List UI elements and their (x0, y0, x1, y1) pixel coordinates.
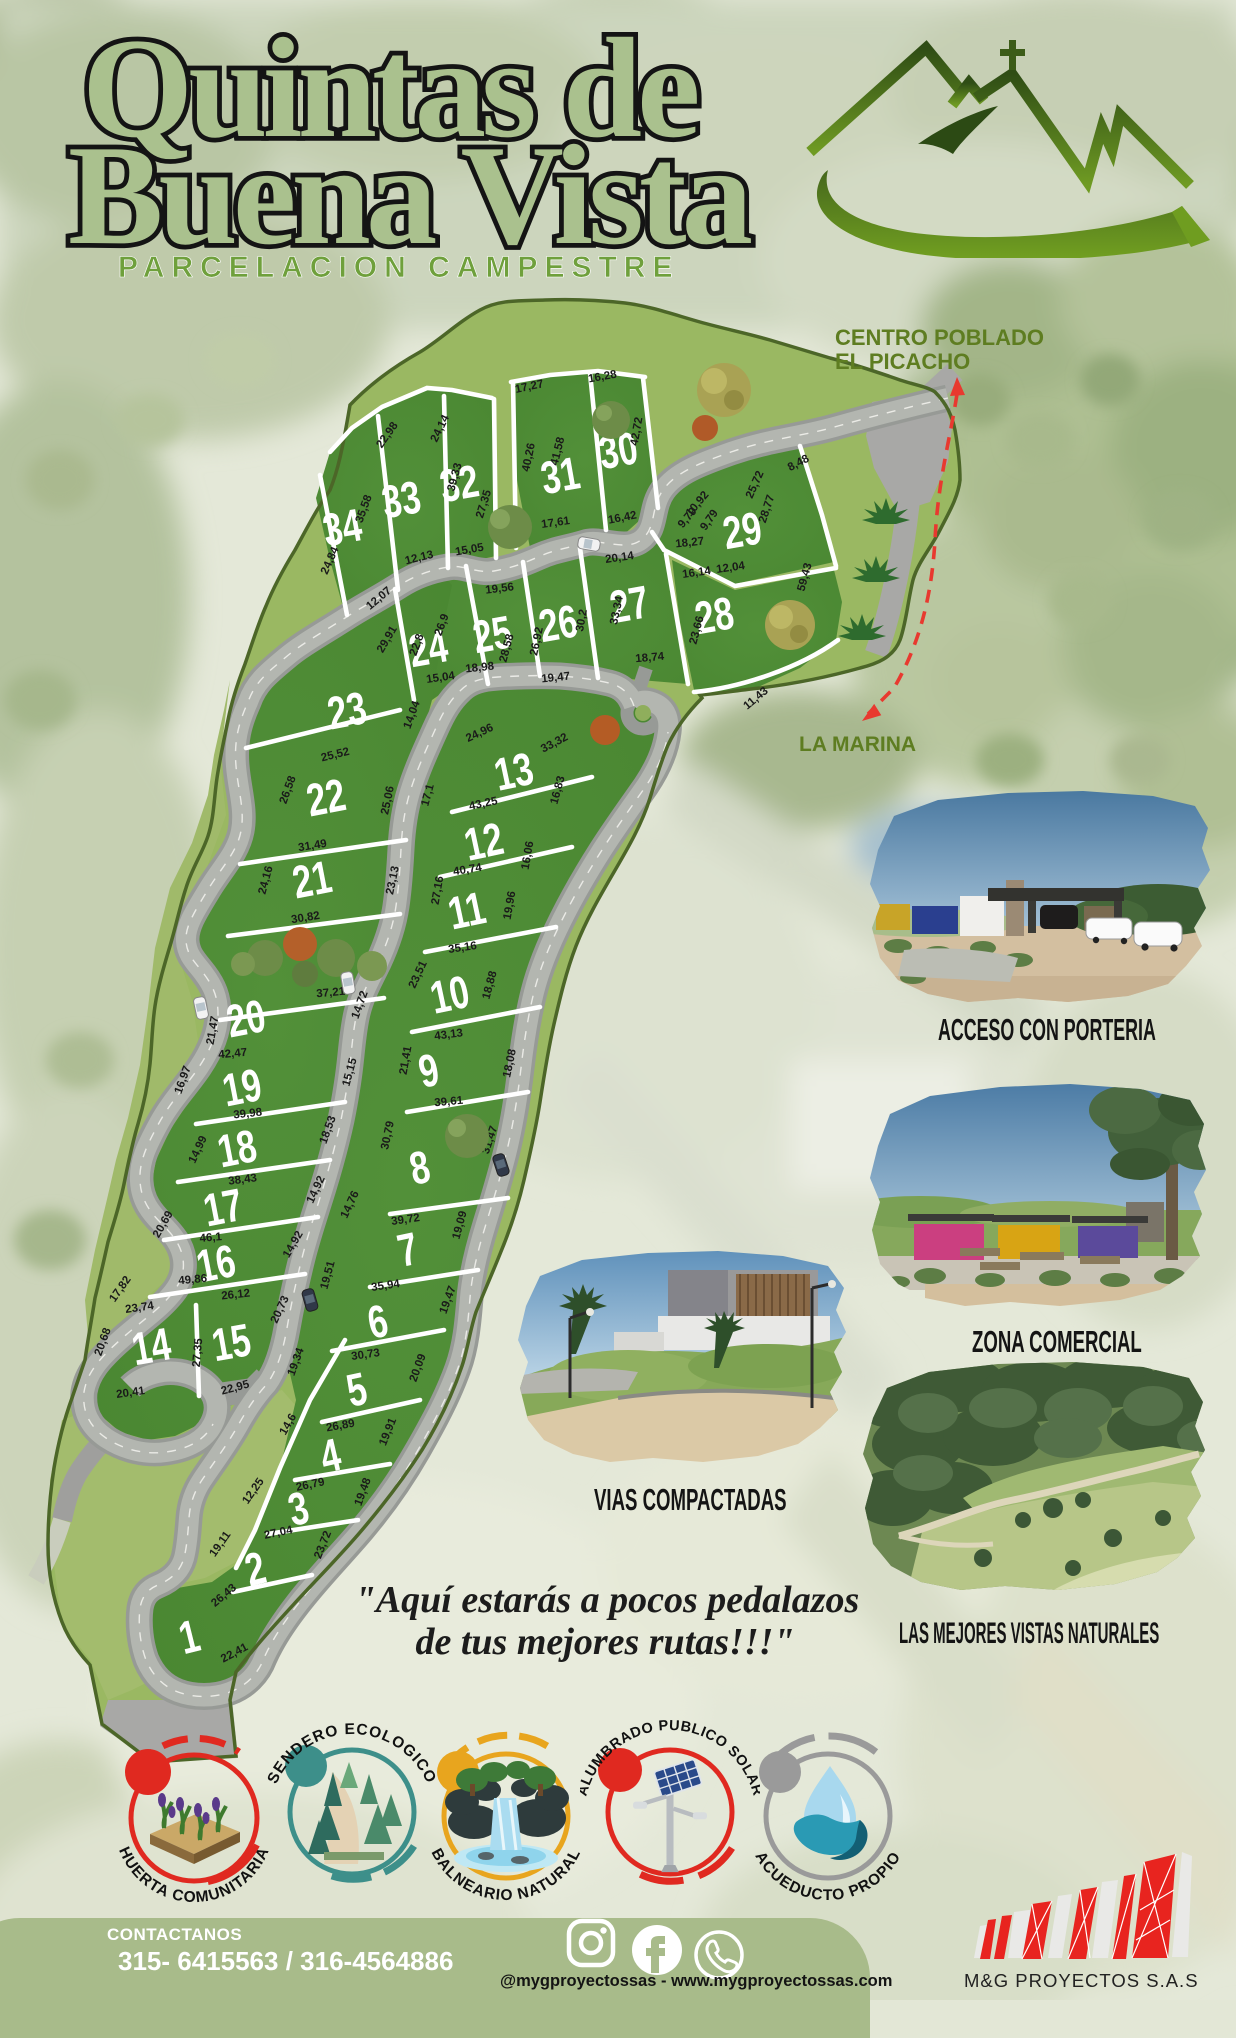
svg-text:"Aquí estarás a pocos pedalazo: "Aquí estarás a pocos pedalazos (355, 1579, 860, 1621)
svg-text:M&G PROYECTOS S.A.S: M&G PROYECTOS S.A.S (964, 1970, 1199, 1991)
svg-text:27,35: 27,35 (191, 1337, 206, 1367)
svg-text:37,21: 37,21 (316, 986, 346, 1001)
svg-text:39,61: 39,61 (434, 1095, 464, 1110)
svg-text:18,74: 18,74 (635, 651, 665, 666)
svg-text:46,1: 46,1 (199, 1231, 223, 1245)
svg-text:EL PICACHO: EL PICACHO (835, 349, 970, 374)
svg-text:49,86: 49,86 (178, 1273, 208, 1287)
svg-text:PARCELACION CAMPESTRE: PARCELACION CAMPESTRE (118, 251, 679, 284)
svg-text:CENTRO POBLADO: CENTRO POBLADO (835, 325, 1044, 350)
svg-text:LA MARINA: LA MARINA (799, 733, 916, 756)
svg-text:42,47: 42,47 (218, 1047, 248, 1061)
svg-text:de tus mejores rutas!!!": de tus mejores rutas!!!" (416, 1621, 795, 1663)
